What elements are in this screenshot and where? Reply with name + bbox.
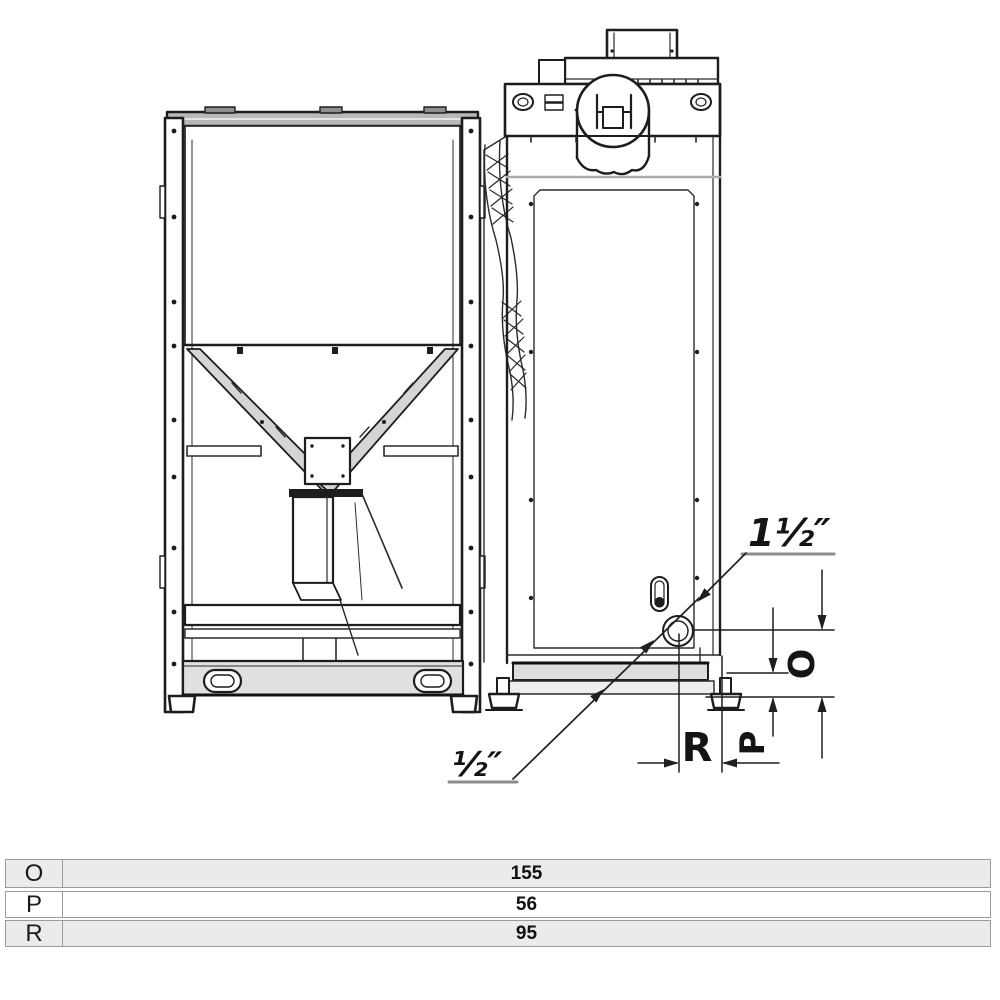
dim-r-label: R — [682, 725, 713, 771]
dim-p-label: P — [733, 731, 773, 756]
table-row-r: R 95 — [5, 920, 991, 947]
table-row-value: 155 — [63, 860, 990, 887]
table-row-label: R — [6, 921, 63, 946]
table-row-p: P 56 — [5, 891, 991, 918]
table-row-label: P — [6, 892, 63, 917]
dim-o-label: O — [782, 649, 823, 680]
table-row-label: O — [6, 860, 63, 887]
table-row-value: 95 — [63, 921, 990, 946]
table-row-o: O 155 — [5, 859, 991, 888]
technical-drawing: 1½″ ½″ O P R — [0, 0, 1000, 855]
pipe-size-large-label: 1½″ — [748, 511, 831, 555]
drawing-page: 1½″ ½″ O P R O 155 P 56 R 95 — [0, 0, 1000, 1000]
pipe-size-small-label: ½″ — [452, 745, 502, 785]
table-row-value: 56 — [63, 892, 990, 917]
hopper-front-view — [160, 107, 485, 712]
pellet-feed-hose — [484, 137, 526, 420]
